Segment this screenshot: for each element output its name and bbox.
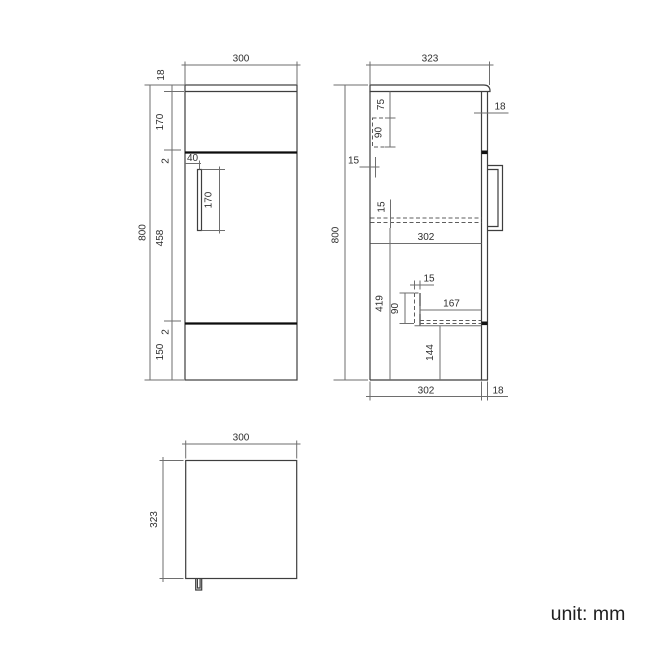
front-door-height-dim-label: 458 (155, 229, 166, 246)
side-upper-gap-mark (482, 151, 488, 155)
side-hidden-box-dim-label: 90 (374, 127, 385, 139)
unit-label: unit: mm (551, 603, 626, 625)
side-view-hidden-lines (371, 118, 482, 326)
side-handle-outer-profile (488, 166, 503, 231)
side-support-thickness-dim-label: 15 (423, 274, 435, 285)
front-upper-gap-dim-label: 2 (161, 158, 172, 164)
front-door-handle (198, 170, 202, 231)
front-cabinet-body (185, 85, 297, 380)
side-shelf-thickness-dim-label: 15 (377, 201, 388, 213)
front-handle-inset-dim-label: 40 (187, 153, 199, 164)
front-view: 300 800 18 170 2 458 2 150 40 170 (138, 54, 301, 381)
plan-view-outline (186, 461, 297, 591)
side-height-dim-label: 800 (331, 226, 342, 243)
plan-width-dim-label: 300 (233, 433, 250, 444)
front-lower-gap-dim-label: 2 (161, 329, 172, 335)
side-recess-height-dim-label: 144 (425, 344, 436, 361)
side-top-offset-dim-label: 75 (376, 99, 387, 111)
side-view: 323 18 75 90 15 15 302 419 15 90 167 144… (331, 54, 509, 401)
plan-handle-inner-profile (197, 579, 200, 589)
side-lower-gap-mark (482, 322, 488, 326)
side-back-inset-dim-label: 15 (348, 156, 360, 167)
side-view-dimension-lines (334, 62, 509, 401)
front-top-panel-dim-label: 18 (156, 69, 167, 81)
side-bottom-internal-dim-label: 302 (418, 386, 435, 397)
side-worktop-panel (370, 85, 490, 92)
dimension-drawing: 300 800 18 170 2 458 2 150 40 170 (0, 0, 650, 650)
front-height-dim-label: 800 (138, 224, 149, 241)
plan-view: 300 323 (149, 433, 301, 591)
plan-depth-dim-label: 323 (149, 511, 160, 528)
side-handle-inner-profile (488, 170, 499, 227)
side-shelf-depth-dim-label: 167 (443, 299, 460, 310)
side-door-thickness-dim-label: 18 (494, 102, 506, 113)
plan-cabinet-body (186, 461, 297, 579)
side-support-height-dim-label: 90 (390, 303, 401, 315)
front-upper-front-dim-label: 170 (155, 113, 166, 130)
front-view-outline (185, 85, 297, 380)
side-internal-depth-dim-label: 302 (418, 232, 435, 243)
front-plinth-dim-label: 150 (155, 343, 166, 360)
side-depth-dim-label: 323 (422, 54, 439, 65)
side-bottom-door-dim-label: 18 (492, 386, 504, 397)
front-handle-length-dim-label: 170 (204, 191, 215, 208)
side-lower-height-dim-label: 419 (375, 295, 386, 312)
front-width-dim-label: 300 (233, 54, 250, 65)
technical-drawing-page: 300 800 18 170 2 458 2 150 40 170 (0, 0, 650, 650)
